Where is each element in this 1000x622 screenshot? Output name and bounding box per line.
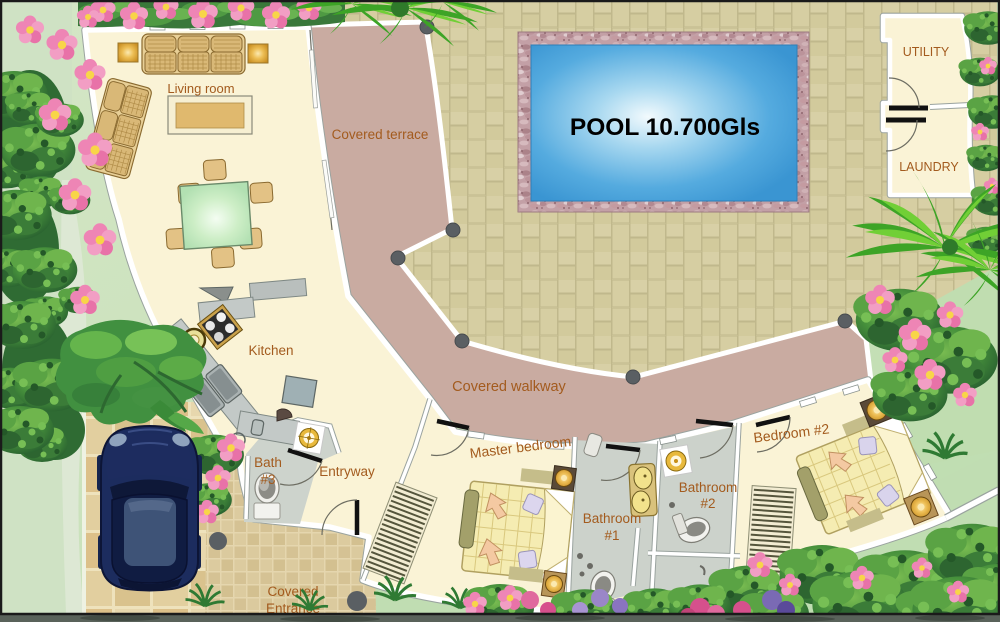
svg-text:#2: #2	[700, 496, 715, 511]
svg-text:Bathroom: Bathroom	[583, 511, 642, 526]
svg-text:Entryway: Entryway	[319, 464, 375, 479]
svg-text:Covered walkway: Covered walkway	[452, 379, 566, 395]
svg-text:Living room: Living room	[167, 81, 234, 96]
svg-text:Bath: Bath	[254, 455, 282, 470]
svg-text:Covered: Covered	[267, 584, 318, 599]
svg-text:POOL 10.700Gls: POOL 10.700Gls	[570, 114, 760, 141]
svg-text:UTILITY: UTILITY	[903, 45, 950, 59]
svg-text:Kitchen: Kitchen	[248, 343, 293, 358]
svg-text:LAUNDRY: LAUNDRY	[899, 160, 959, 174]
svg-text:Bathroom: Bathroom	[679, 480, 738, 495]
svg-text:#1: #1	[604, 528, 619, 543]
svg-text:#3: #3	[260, 472, 275, 487]
svg-text:Covered terrace: Covered terrace	[332, 127, 429, 142]
